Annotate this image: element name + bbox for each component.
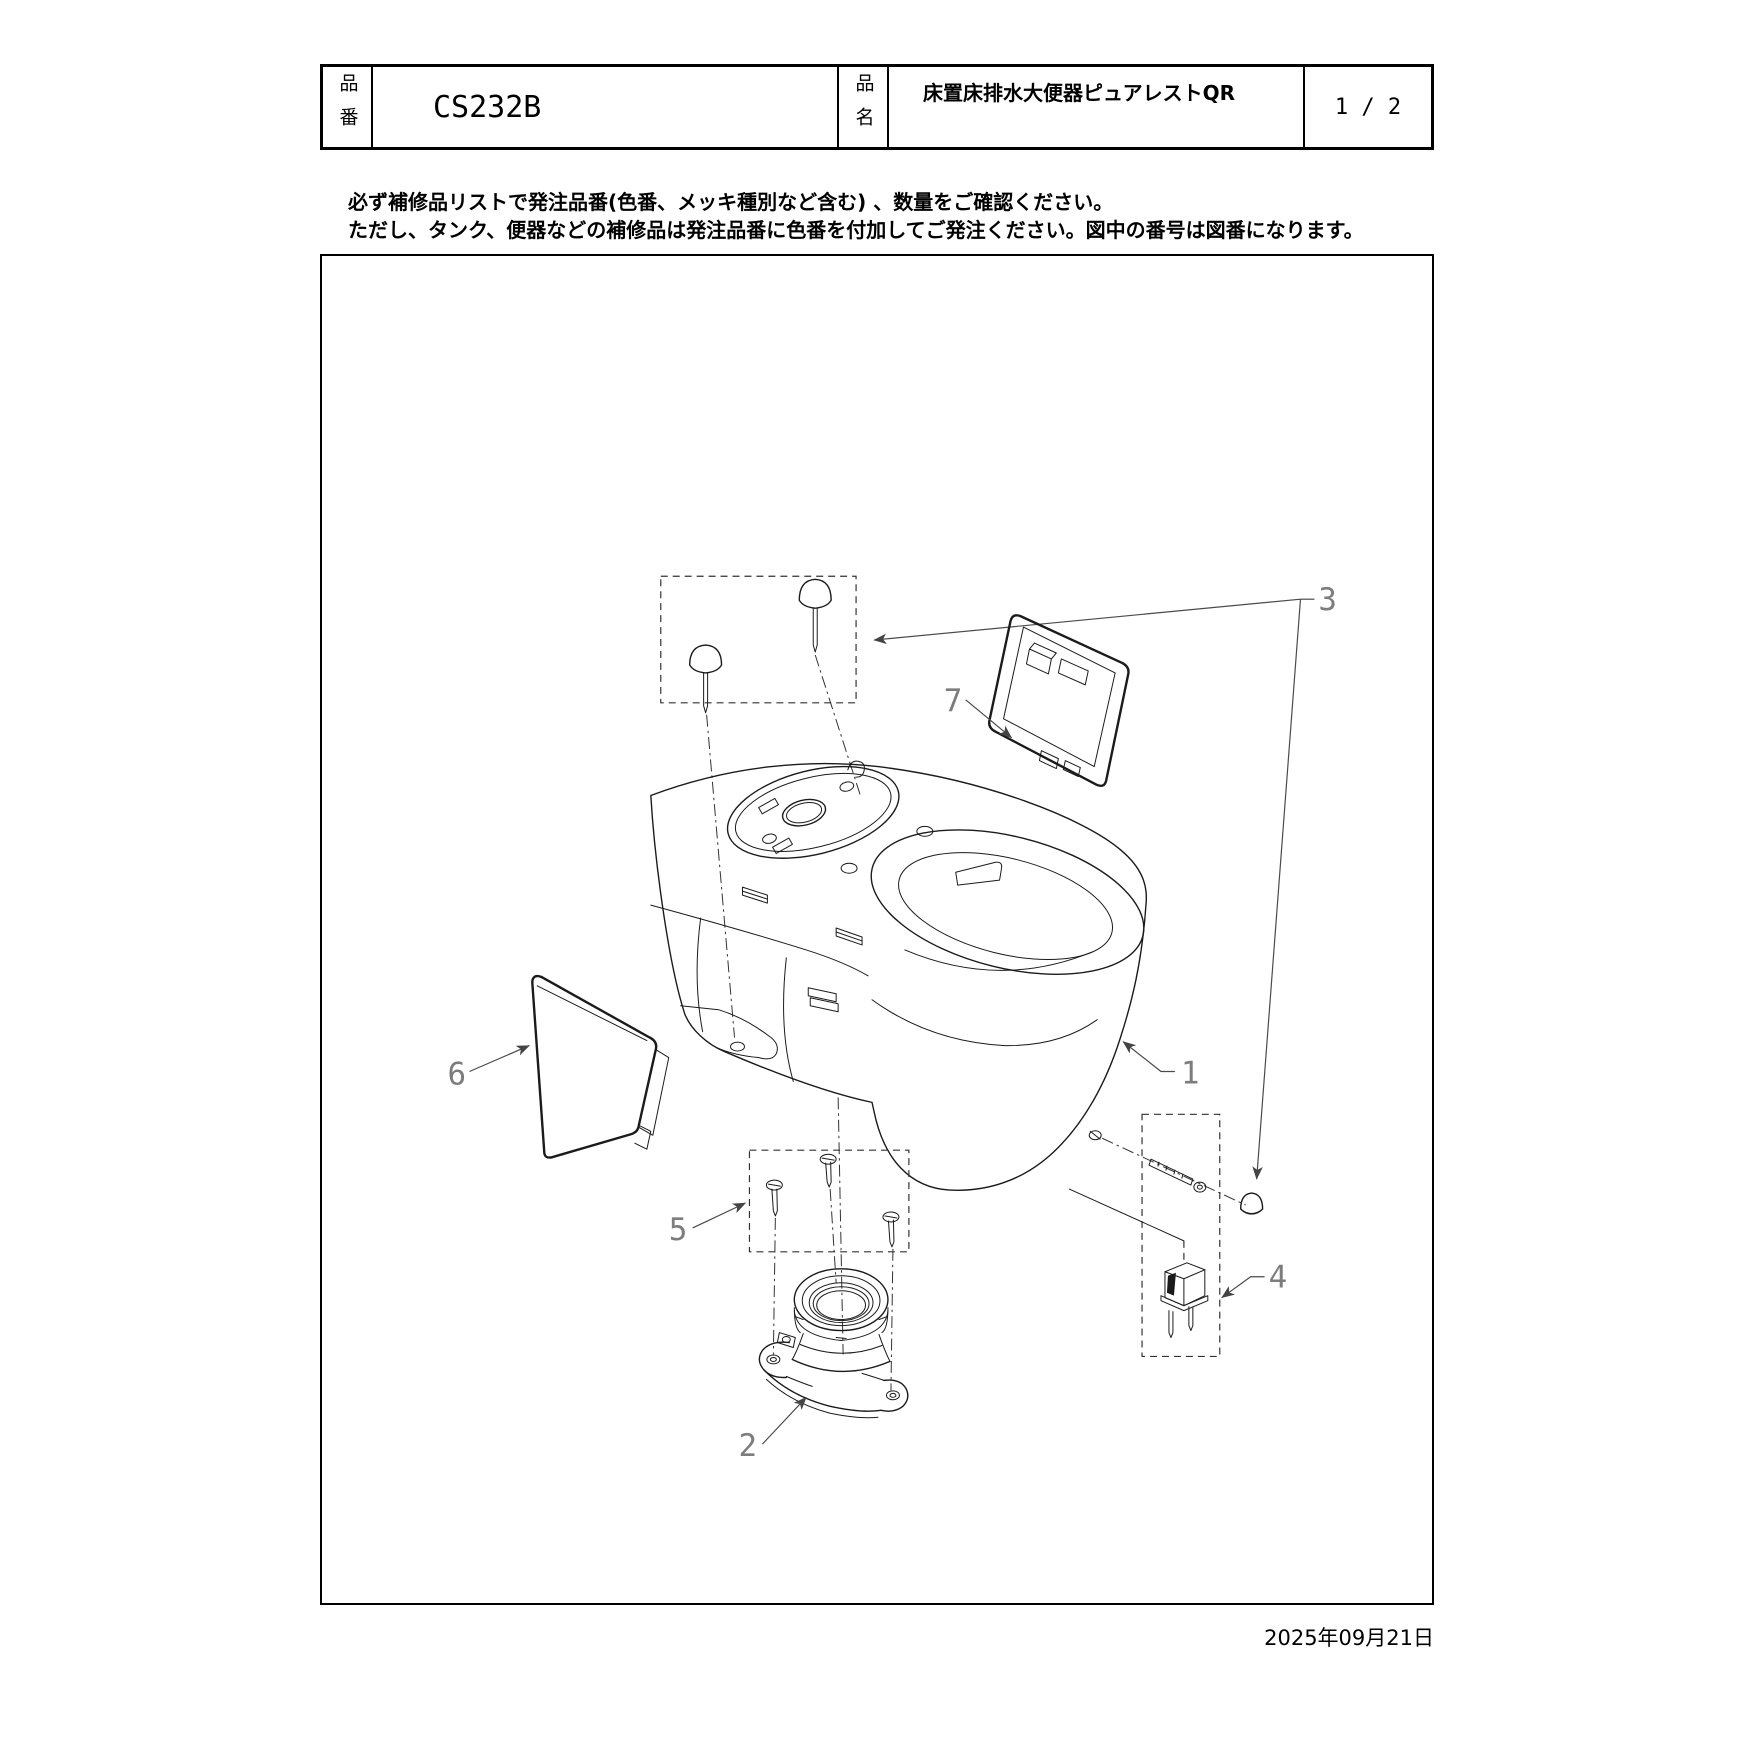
part-name-label-cell: 品名 <box>839 67 889 147</box>
callout-2-number: 2 <box>738 1428 757 1464</box>
part-name-label: 品名 <box>854 73 873 141</box>
order-note-line2: ただし、タンク、便器などの補修品は発注品番に色番を付加してご発注ください。図中の… <box>348 216 1364 244</box>
side-panel-part6 <box>532 976 669 1158</box>
exploded-parts-diagram: 3 <box>322 256 1432 1603</box>
part-number-value: CS232B <box>373 90 541 125</box>
callout-1: 1 <box>1123 1042 1199 1092</box>
dome-cap <box>1241 1193 1263 1214</box>
part-name-value: 床置床排水大便器ピュアレストQR <box>923 81 1235 105</box>
part-number-label-cell: 品番 <box>323 67 373 147</box>
panel-clips <box>1026 643 1088 777</box>
callout-2: 2 <box>738 1397 806 1464</box>
callout-5-number: 5 <box>669 1212 688 1248</box>
gasket-plate <box>718 751 908 875</box>
page-indicator: 1 / 2 <box>1335 95 1401 120</box>
callout-3: 3 <box>874 582 1337 1214</box>
callout-3-number: 3 <box>1318 582 1337 618</box>
foot-flange <box>681 1006 778 1059</box>
dome-bolt-left <box>690 645 735 1038</box>
callout-5: 5 <box>669 1203 746 1248</box>
callout-7: 7 <box>944 683 1012 738</box>
back-panel-part7 <box>989 615 1128 786</box>
page-indicator-cell: 1 / 2 <box>1305 67 1431 147</box>
body-mount-hole <box>1089 1131 1101 1140</box>
issue-date: 2025年09月21日 <box>1114 1622 1434 1652</box>
screw-left <box>766 1180 782 1354</box>
callout-1-number: 1 <box>1181 1055 1200 1091</box>
callout-4-number: 4 <box>1269 1260 1288 1296</box>
dome-bolt-right <box>799 579 860 794</box>
toilet-body-part1 <box>651 751 1159 1355</box>
callout-7-number: 7 <box>944 683 963 719</box>
part-name-cell: 床置床排水大便器ピュアレストQR <box>889 67 1305 147</box>
screw-center <box>820 1154 836 1283</box>
callout-6-number: 6 <box>448 1056 467 1092</box>
parts-catalog-page: 品番 CS232B 品名 床置床排水大便器ピュアレストQR 1 / 2 必ず補修… <box>0 0 1754 1754</box>
part-number-cell: CS232B <box>373 67 839 147</box>
order-note-line1: 必ず補修品リストで発注品番(色番、メッキ種別など含む) 、数量をご確認ください。 <box>348 188 1364 216</box>
order-notes: 必ず補修品リストで発注品番(色番、メッキ種別など含む) 、数量をご確認ください。… <box>348 188 1364 244</box>
bowl-rim <box>856 805 1159 1000</box>
header-table: 品番 CS232B 品名 床置床排水大便器ピュアレストQR 1 / 2 <box>320 64 1434 150</box>
callout-6: 6 <box>448 1046 530 1093</box>
callout-4: 4 <box>1222 1260 1287 1298</box>
fixing-kit-dashed-box-part4 <box>1069 1114 1245 1356</box>
flange-base-plate <box>759 1342 907 1418</box>
floor-flange-part2 <box>759 1269 907 1418</box>
part-number-label: 品番 <box>338 73 357 141</box>
diagram-border: 3 <box>320 254 1434 1605</box>
fixing-bracket <box>1161 1263 1208 1338</box>
